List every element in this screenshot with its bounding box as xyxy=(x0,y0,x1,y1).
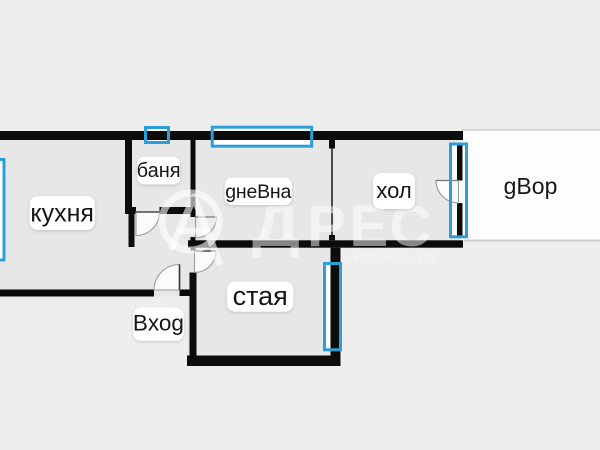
svg-text:стая: стая xyxy=(233,281,288,311)
svg-text:кухня: кухня xyxy=(30,200,94,228)
svg-text:address.bg: address.bg xyxy=(349,248,438,265)
svg-text:хол: хол xyxy=(376,178,411,203)
svg-text:gнеBна: gнеBна xyxy=(225,181,291,203)
svg-text:баня: баня xyxy=(137,160,181,182)
svg-text:Bхоg: Bхоg xyxy=(133,311,184,336)
svg-text:gBор: gBор xyxy=(504,173,558,199)
